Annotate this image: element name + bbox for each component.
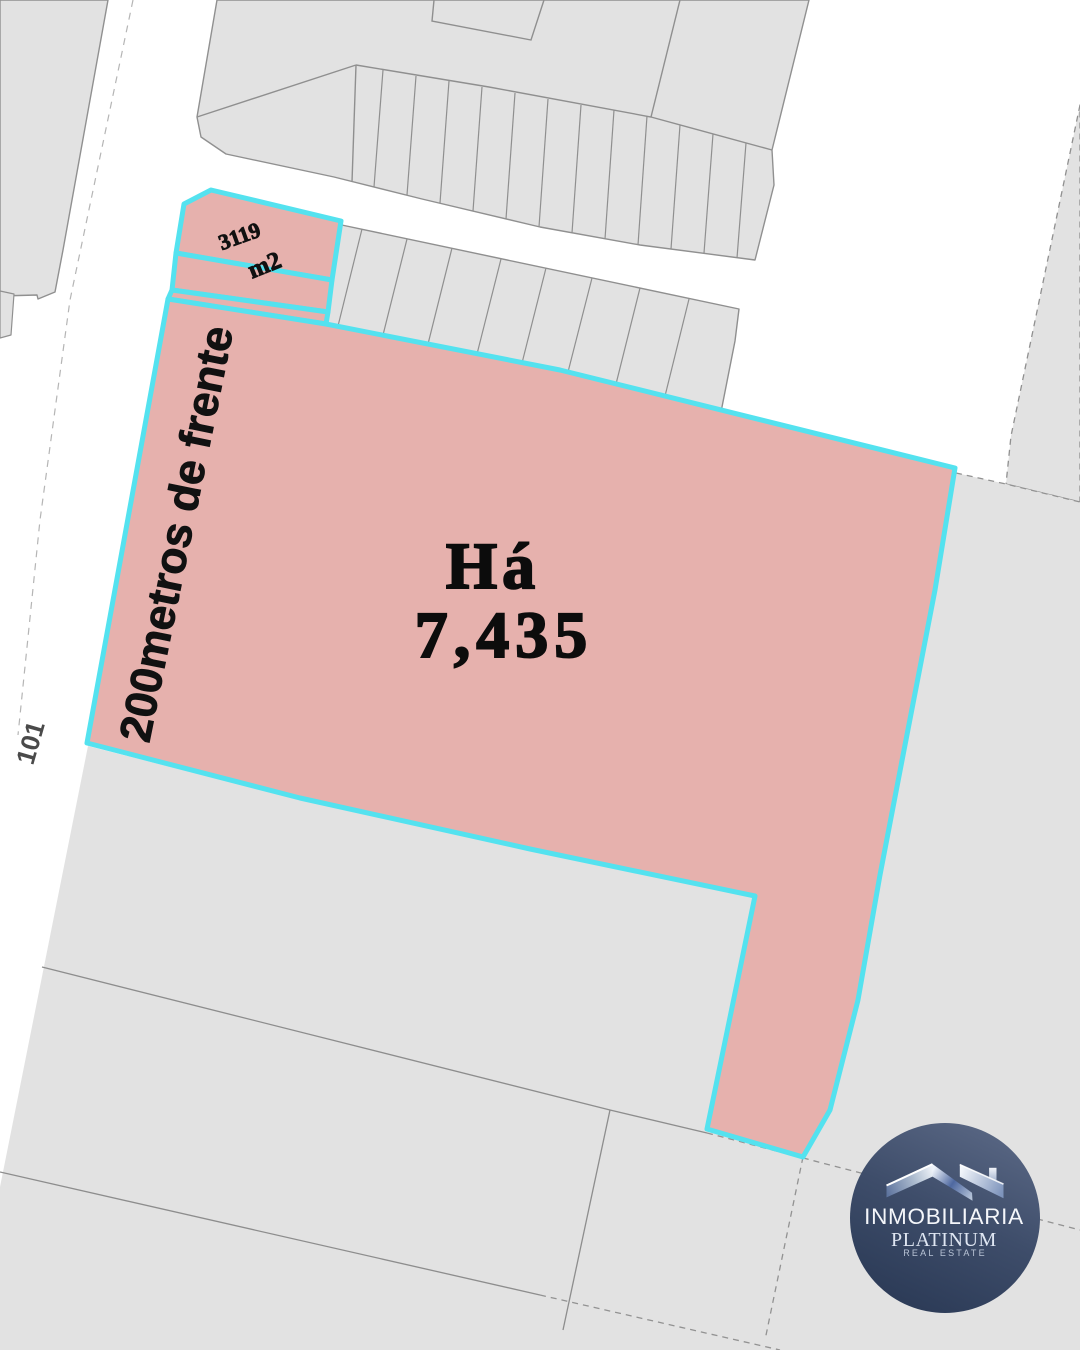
svg-text:REAL ESTATE: REAL ESTATE (903, 1248, 987, 1258)
svg-text:Há: Há (446, 530, 540, 603)
svg-text:7,435: 7,435 (415, 599, 594, 672)
svg-text:INMOBILIARIA: INMOBILIARIA (864, 1204, 1024, 1229)
